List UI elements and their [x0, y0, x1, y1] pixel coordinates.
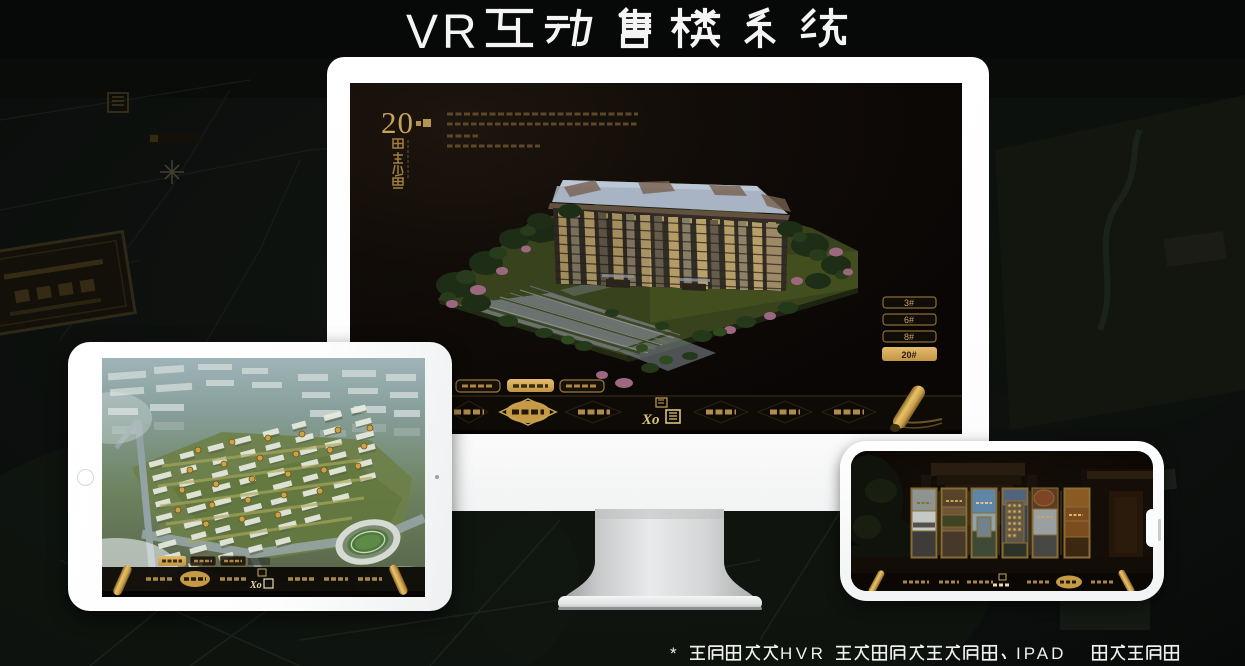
- svg-text:*: *: [670, 644, 677, 663]
- svg-text:VR: VR: [406, 6, 481, 56]
- svg-text:IPAD: IPAD: [1016, 644, 1066, 663]
- svg-text:HVR: HVR: [780, 644, 826, 663]
- svg-text:20#: 20#: [901, 350, 916, 360]
- svg-text:20: 20: [381, 105, 414, 140]
- svg-text:Xo: Xo: [249, 580, 262, 591]
- svg-text:Xo: Xo: [641, 412, 660, 428]
- svg-text:6#: 6#: [904, 315, 914, 325]
- svg-text:8#: 8#: [904, 332, 914, 342]
- svg-text:3#: 3#: [904, 298, 914, 308]
